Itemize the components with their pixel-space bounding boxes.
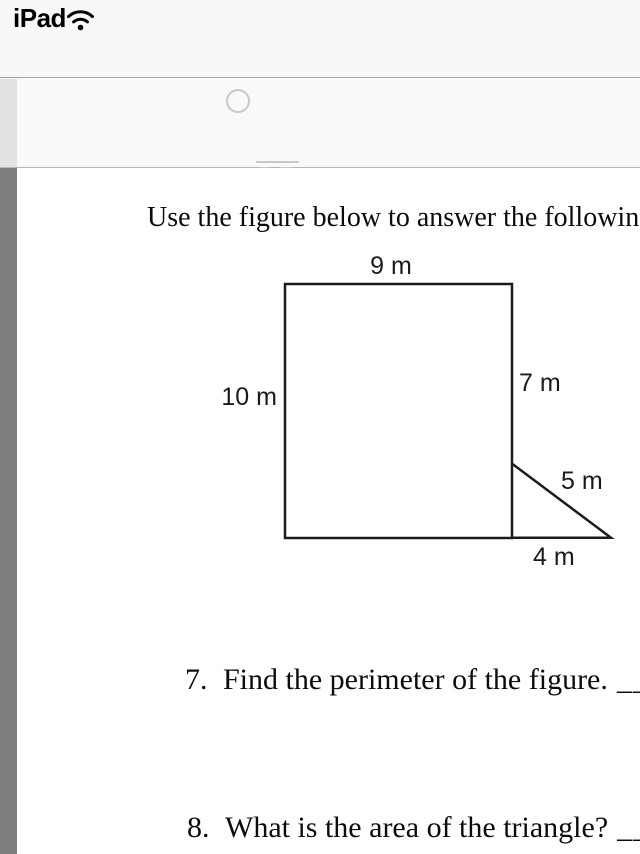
- question-7-answer-blank: ______: [617, 663, 640, 696]
- figure-label-top-side: 9 m: [370, 254, 412, 279]
- radio-button[interactable]: [226, 89, 250, 113]
- question-7-number: 7.: [185, 665, 223, 695]
- figure-label-right-side: 7 m: [519, 371, 561, 396]
- page-edge-strip: [0, 168, 17, 854]
- left-gutter-strip: [0, 79, 17, 167]
- device-label: iPad: [13, 4, 66, 33]
- question-7-text: Find the perimeter of the figure.: [223, 663, 608, 696]
- question-8: 8.What is the area of the triangle?_____…: [187, 813, 640, 843]
- figure-label-hypotenuse: 5 m: [561, 469, 603, 494]
- question-7: 7.Find the perimeter of the figure._____…: [185, 665, 640, 695]
- instruction-text: Use the figure below to answer the follo…: [147, 204, 640, 232]
- status-bar: iPad: [0, 0, 640, 78]
- question-8-answer-blank: ______: [617, 811, 640, 844]
- question-8-number: 8.: [187, 813, 225, 843]
- figure-label-left-side: 10 m: [200, 385, 277, 410]
- wifi-icon: [66, 8, 95, 32]
- figure-label-base: 4 m: [533, 545, 575, 570]
- worksheet-page: Use the figure below to answer the follo…: [0, 168, 640, 854]
- question-8-text: What is the area of the triangle?: [225, 811, 608, 844]
- answer-choice-row: DB: [0, 79, 640, 168]
- geometry-figure: [0, 168, 640, 854]
